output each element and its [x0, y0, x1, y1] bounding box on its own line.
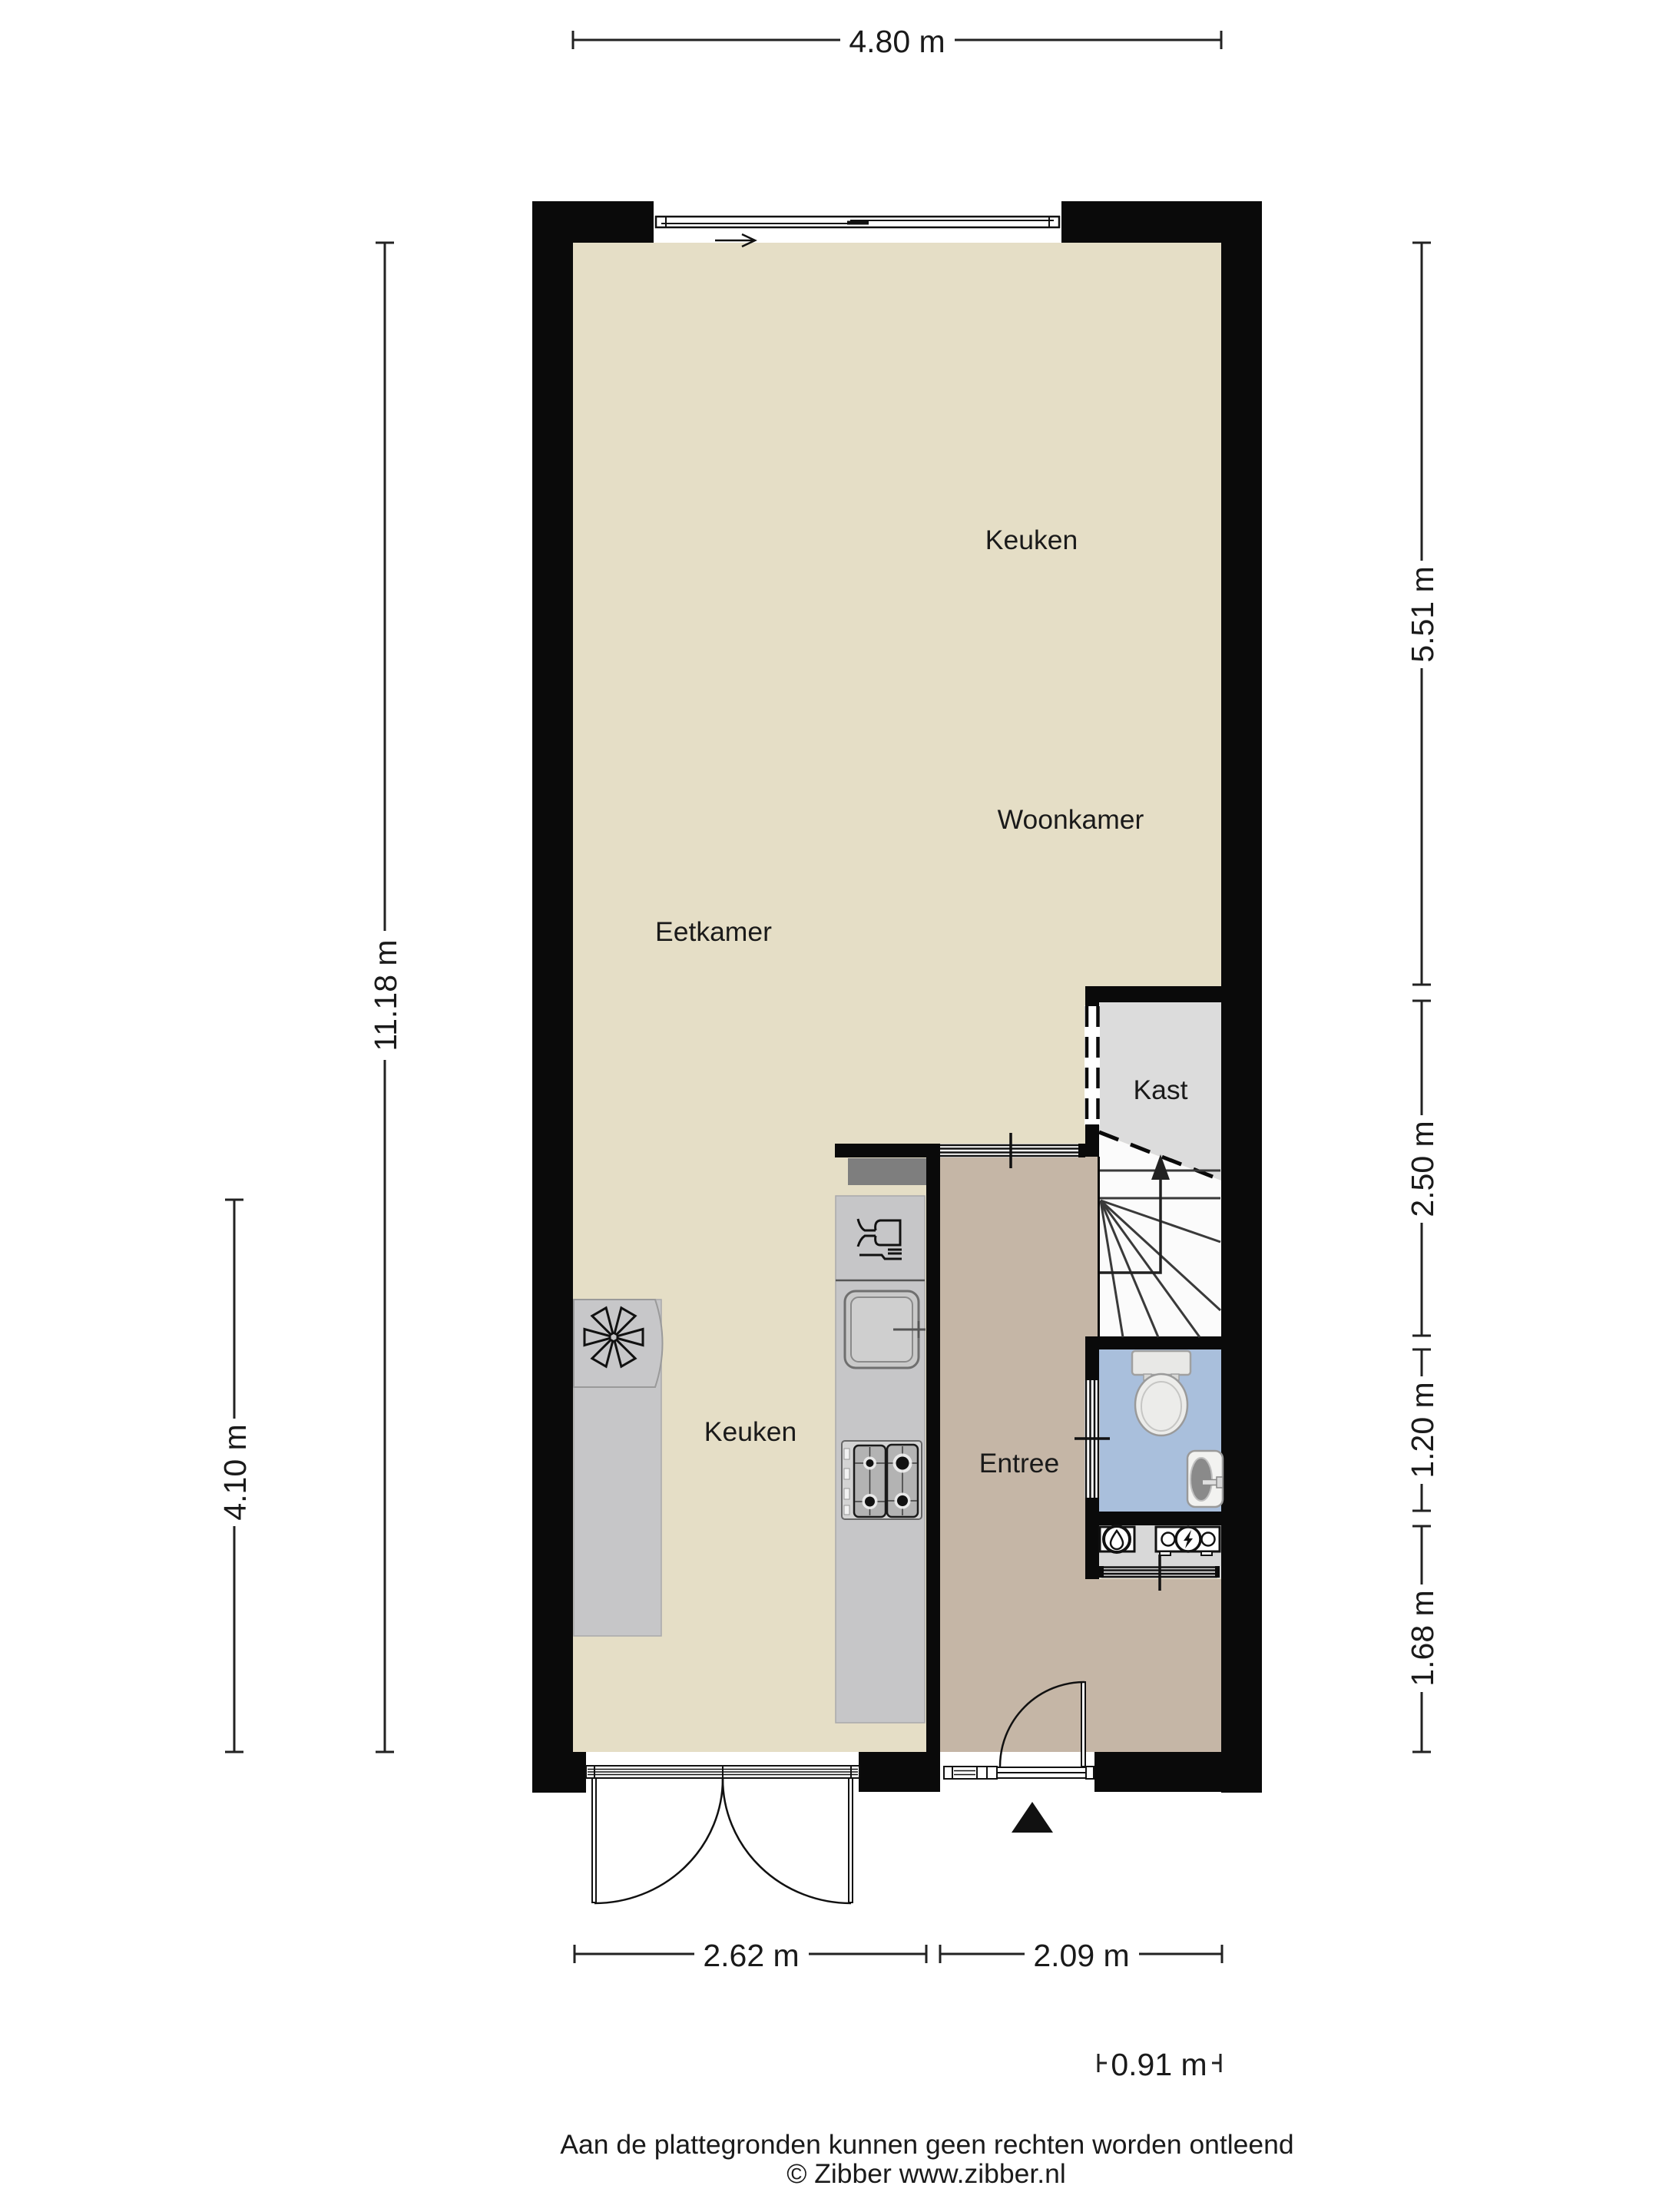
svg-text:5.51 m: 5.51 m	[1405, 566, 1440, 662]
svg-text:4.10 m: 4.10 m	[217, 1424, 253, 1520]
svg-text:Aan de plattegronden kunnen ge: Aan de plattegronden kunnen geen rechten…	[560, 2129, 1293, 2160]
svg-text:© Zibber www.zibber.nl: © Zibber www.zibber.nl	[786, 2158, 1066, 2189]
svg-text:Eetkamer: Eetkamer	[655, 916, 772, 947]
svg-text:Keuken: Keuken	[704, 1416, 796, 1447]
svg-text:Kast: Kast	[1133, 1075, 1187, 1105]
svg-text:Keuken: Keuken	[985, 525, 1078, 555]
svg-text:2.50 m: 2.50 m	[1405, 1121, 1440, 1217]
svg-text:1.68 m: 1.68 m	[1405, 1590, 1440, 1686]
svg-text:Entree: Entree	[979, 1448, 1060, 1479]
svg-text:11.18 m: 11.18 m	[368, 939, 403, 1051]
svg-text:2.62 m: 2.62 m	[703, 1938, 799, 1973]
svg-text:4.80 m: 4.80 m	[849, 24, 945, 59]
svg-text:Woonkamer: Woonkamer	[998, 804, 1144, 835]
svg-text:1.20 m: 1.20 m	[1405, 1382, 1440, 1478]
svg-text:2.09 m: 2.09 m	[1033, 1938, 1129, 1973]
svg-text:0.91 m: 0.91 m	[1111, 2047, 1207, 2082]
